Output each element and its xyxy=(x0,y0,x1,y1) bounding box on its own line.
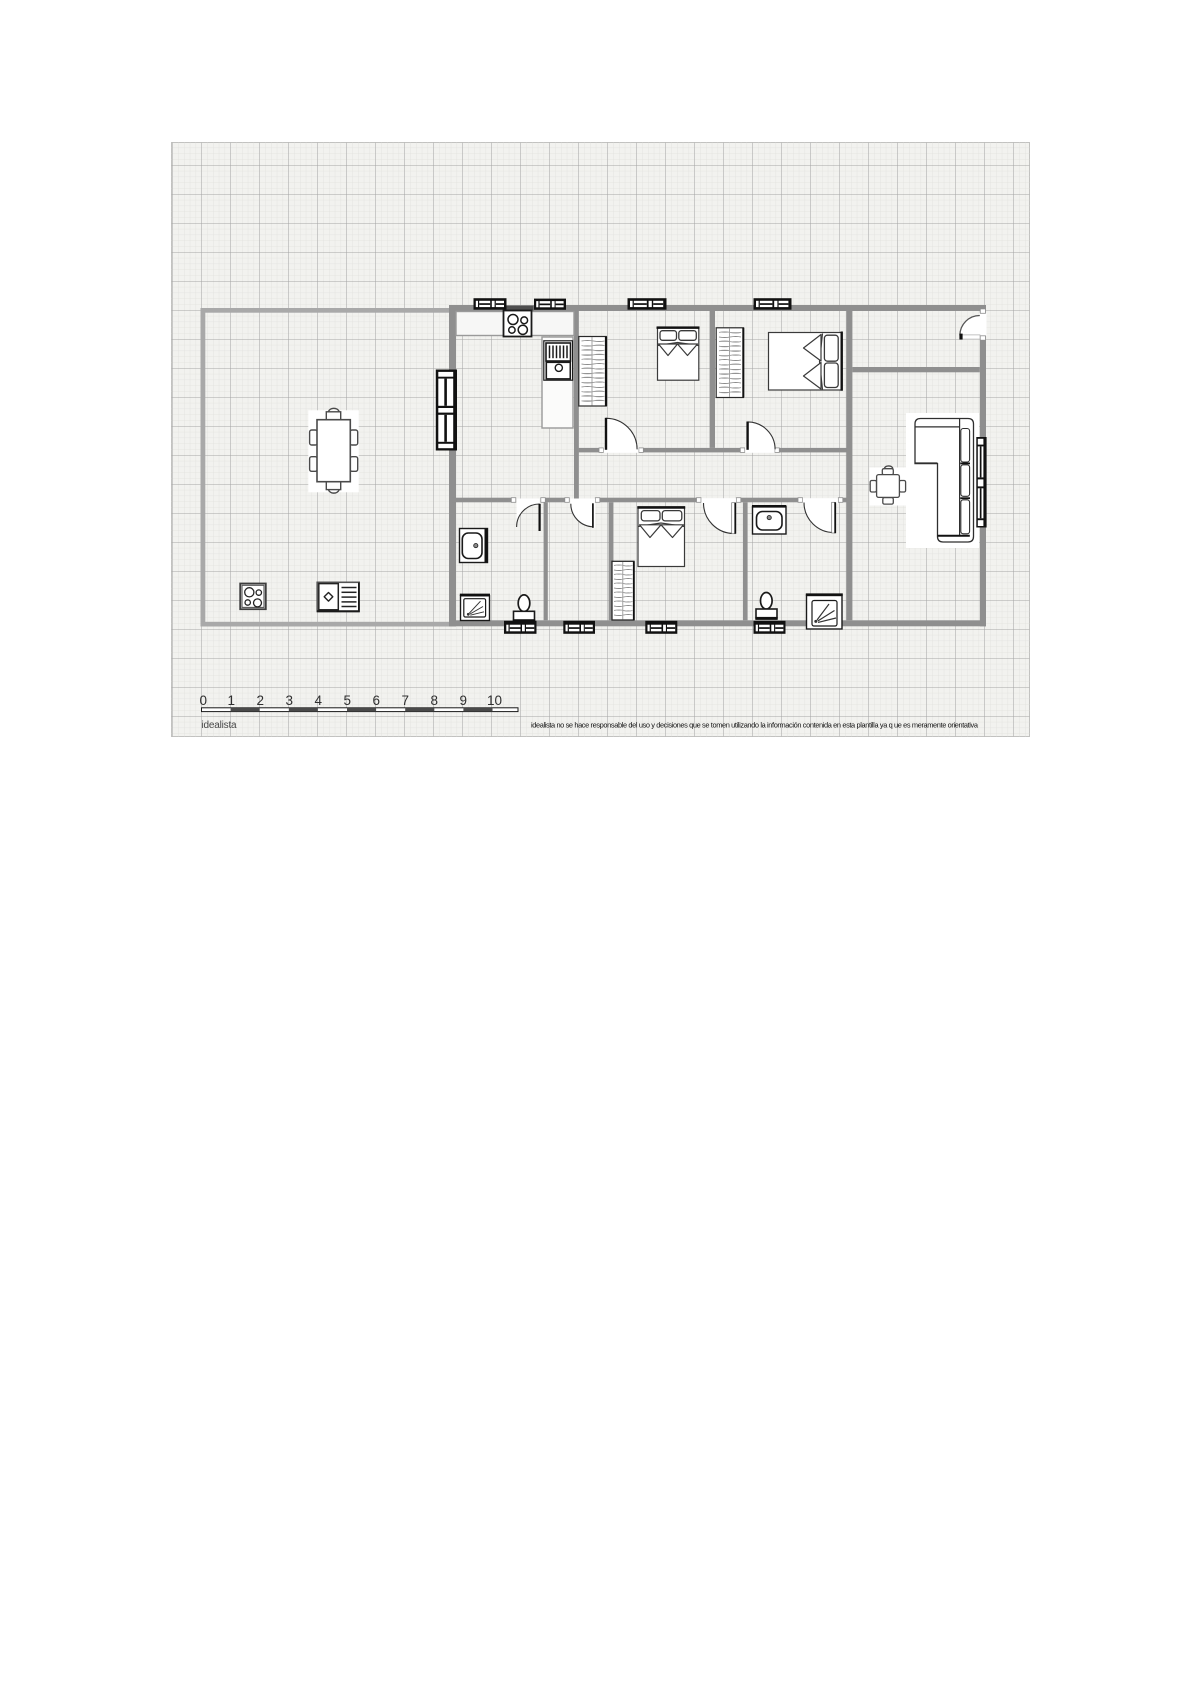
svg-text:7: 7 xyxy=(402,693,410,708)
svg-text:5: 5 xyxy=(344,693,352,708)
svg-text:8: 8 xyxy=(431,693,439,708)
svg-text:3: 3 xyxy=(286,693,294,708)
svg-text:4: 4 xyxy=(315,693,323,708)
svg-text:idealista: idealista xyxy=(202,720,238,731)
svg-text:idealista no se hace responsab: idealista no se hace responsable del uso… xyxy=(531,721,979,730)
svg-text:1: 1 xyxy=(228,693,236,708)
svg-text:6: 6 xyxy=(373,693,381,708)
svg-text:10: 10 xyxy=(487,693,502,708)
svg-text:9: 9 xyxy=(460,693,468,708)
svg-text:2: 2 xyxy=(257,693,265,708)
svg-text:0: 0 xyxy=(200,693,208,708)
